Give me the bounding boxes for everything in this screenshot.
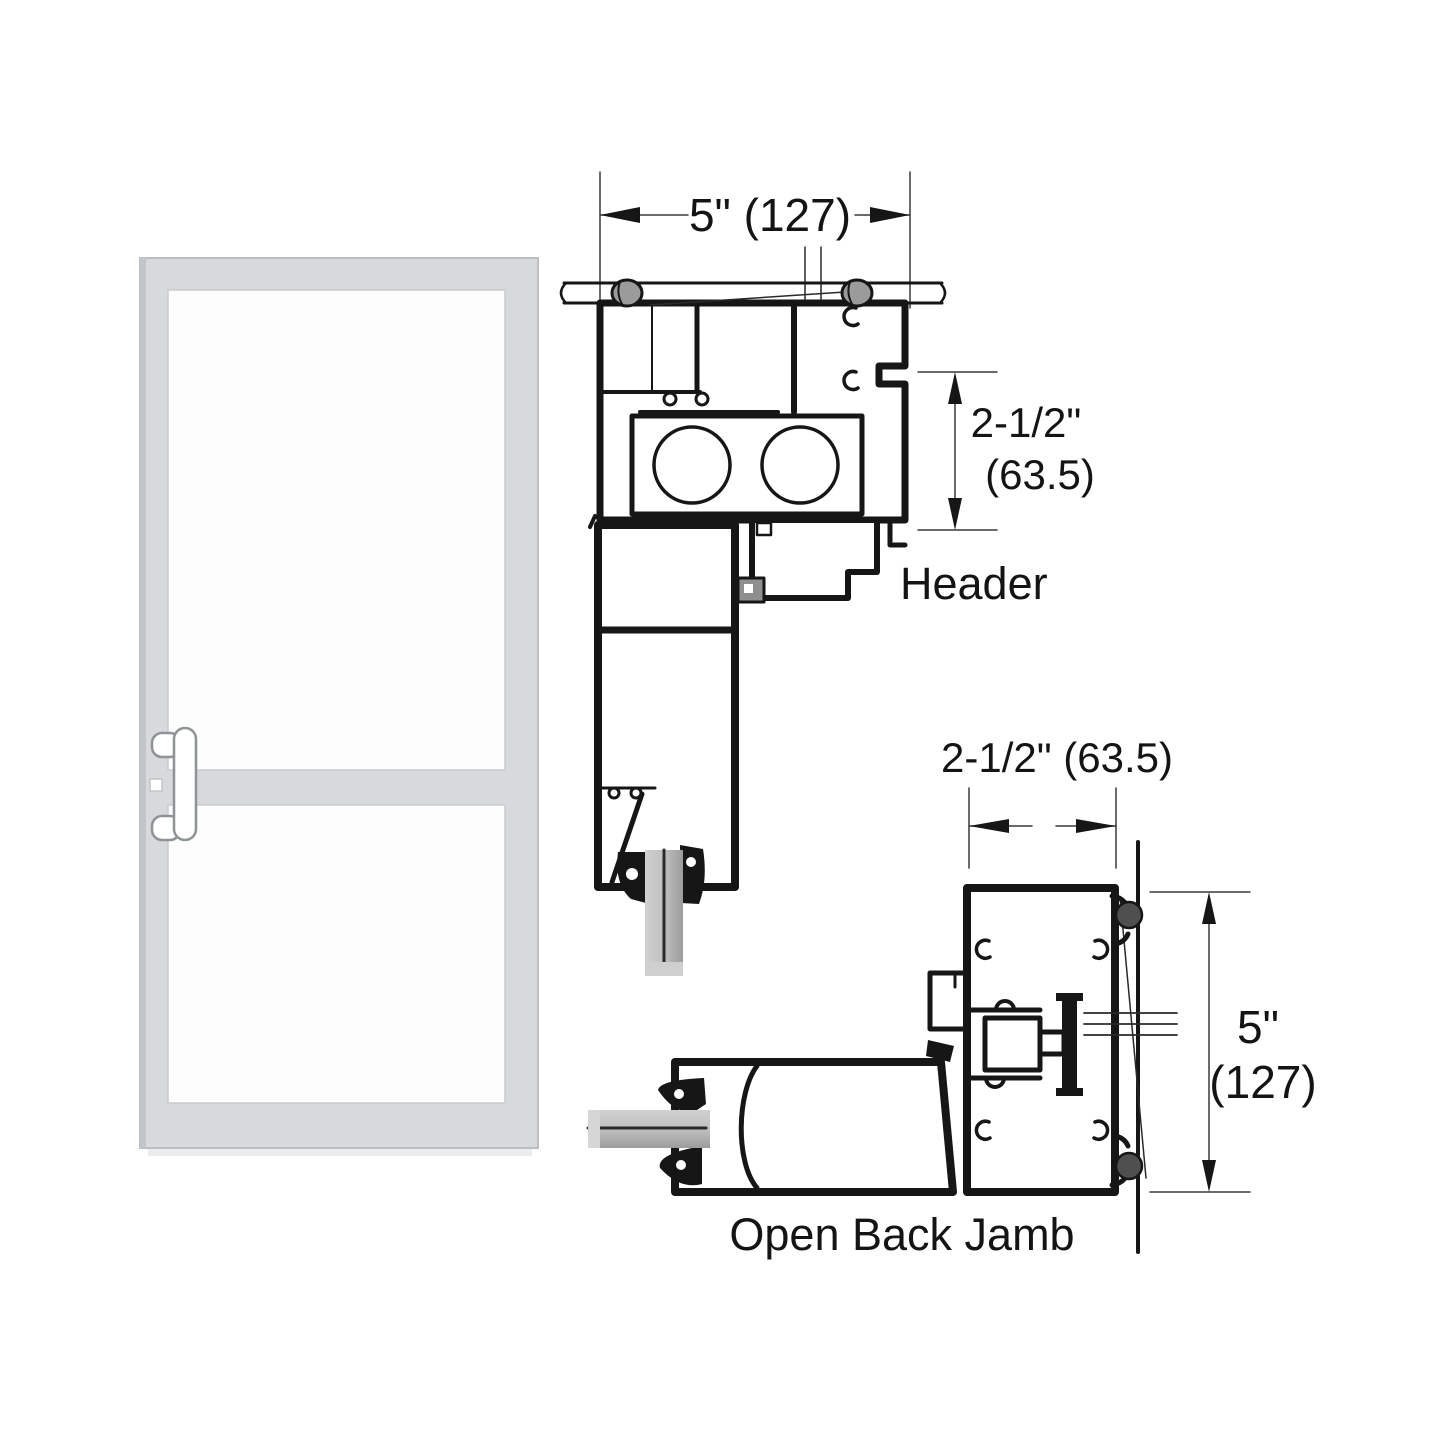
arrow-down-icon [948,498,962,530]
door-elevation [140,258,538,1156]
jamb-filler [926,973,968,1062]
door-details-drawing: 5" (127) [0,0,1445,1445]
arrow-up-icon [1202,892,1216,924]
jamb-label: Open Back Jamb [729,1209,1074,1260]
arrow-down-icon [1202,1160,1216,1192]
jamb-width-dim-text: 2-1/2" (63.5) [941,734,1173,781]
stop-hook [890,520,905,545]
door-glass-top-panel [168,290,505,770]
door-stile-section [588,1062,953,1192]
stop-notch [757,523,771,535]
gasket-hole [686,857,696,867]
glass-fade [588,1110,600,1148]
header-width-dim-text: 5" (127) [689,189,851,241]
header-detail: 5" (127) [561,172,1095,976]
screw-boss-box [632,416,862,514]
arrow-right-icon [1076,819,1116,833]
header-height-dimension: 2-1/2" (63.5) [918,372,1095,530]
pivot-clip-slot [744,584,753,593]
arrow-right-icon [870,207,910,223]
jamb-height-dimension: 5" (127) [1150,892,1317,1192]
gasket-hole [626,868,638,880]
handle-grip-bar [174,728,196,840]
break-line-icon [561,283,566,303]
glazing-gasket [680,845,705,904]
screw-icon [612,280,642,306]
header-height-dim-text-1: 2-1/2" [971,399,1082,446]
header-label: Header [900,558,1048,609]
door-lock-indicator [150,779,162,791]
gasket-hole [676,1160,686,1170]
jamb-center-assembly [971,993,1177,1096]
gasket-bulb [1116,902,1142,928]
stile-tube [675,1062,953,1192]
arrow-up-icon [948,372,962,404]
break-line-icon [940,283,945,303]
gasket-bulb [1116,1153,1142,1179]
header-height-dim-text-2: (63.5) [985,451,1095,498]
door-glass-bottom-panel [168,805,505,1103]
door-frame-left-edge [140,258,146,1148]
diagram-canvas: 5" (127) [0,0,1445,1445]
arrow-left-icon [600,207,640,223]
gasket-hole [674,1089,684,1099]
glass-fade [645,962,683,976]
jamb-height-dim-text-1: 5" [1237,1001,1279,1053]
door-top-rail-section [590,516,764,976]
screw-icon [842,280,872,306]
jamb-height-dim-text-2: (127) [1209,1056,1316,1108]
arrow-left-icon [969,819,1009,833]
rail-tube [598,525,735,887]
